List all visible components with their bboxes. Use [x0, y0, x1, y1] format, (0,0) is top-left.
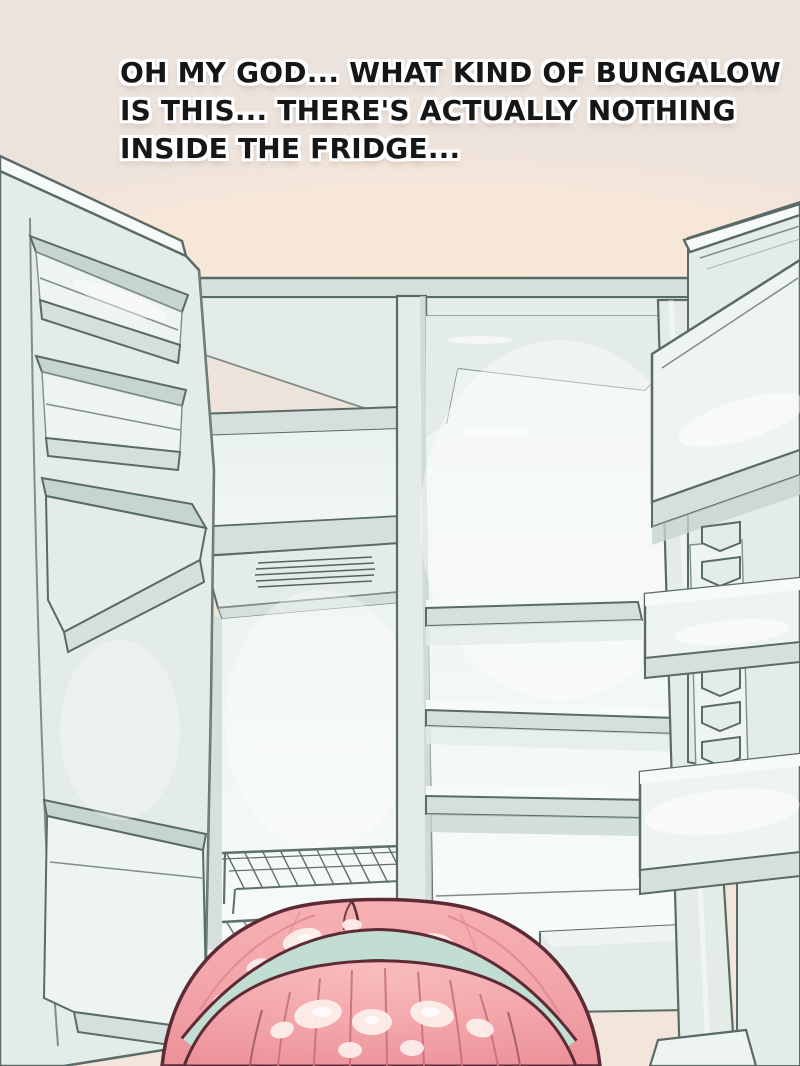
glass-shelf-2: [426, 700, 680, 752]
right-door-bin-middle: [645, 578, 800, 678]
dialogue-line-1: OH MY GOD... WHAT KIND OF BUNGALOW: [120, 54, 760, 92]
comic-panel: OH MY GOD... WHAT KIND OF BUNGALOW IS TH…: [0, 0, 800, 1066]
right-door-bin-lower: [640, 754, 800, 894]
glass-shelf-3: [426, 786, 648, 836]
dialogue-text: OH MY GOD... WHAT KIND OF BUNGALOW IS TH…: [120, 54, 760, 168]
freezer-back-wall: [196, 429, 400, 527]
glass-shelf-1: [426, 594, 642, 646]
dialogue-line-2: IS THIS... THERE'S ACTUALLY NOTHING: [120, 92, 760, 130]
dialogue-line-3: INSIDE THE FRIDGE...: [120, 130, 760, 168]
left-door: [0, 156, 214, 1066]
